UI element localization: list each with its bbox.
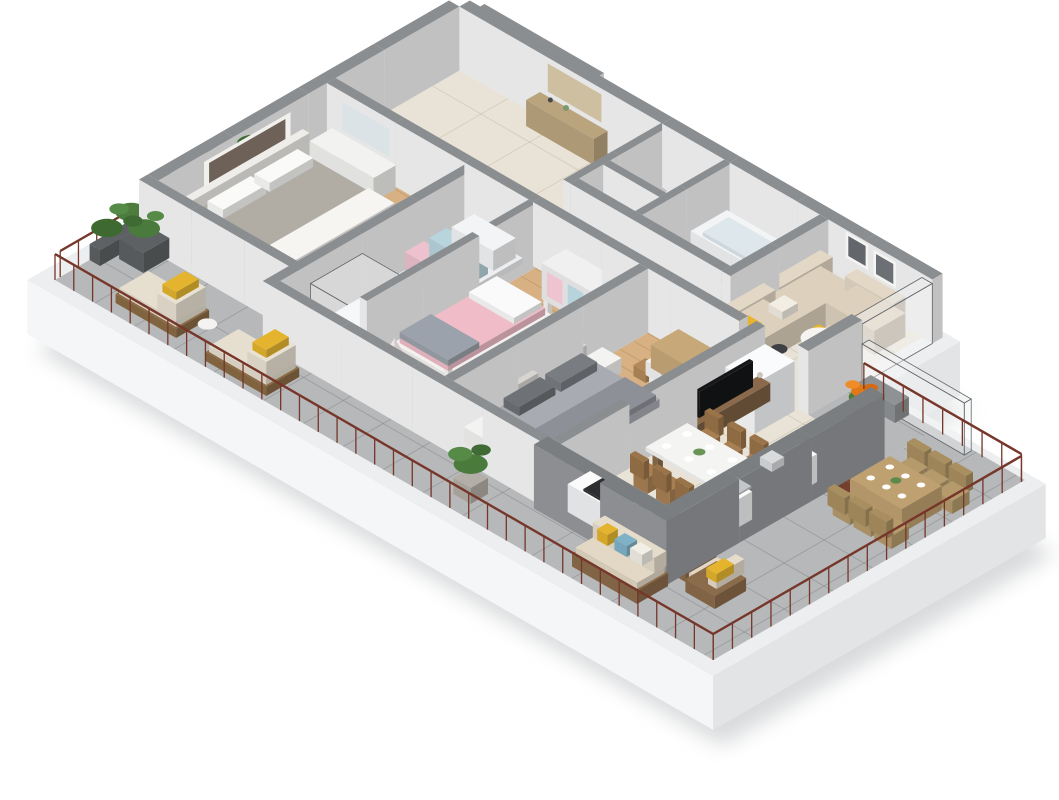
isometric-floor-plan <box>0 0 1059 800</box>
flower-pot-1-bloom-2 <box>845 380 860 389</box>
outdoor-plate-5 <box>898 494 907 499</box>
outdoor-plate-2 <box>886 465 895 470</box>
hedge-top-1 <box>109 203 129 214</box>
console-vase <box>757 372 763 378</box>
floor-plan-image <box>0 0 1059 800</box>
outdoor-plate-3 <box>882 485 891 490</box>
corner-plant-foliage-2 <box>123 215 143 226</box>
dining-plate-4 <box>705 444 715 450</box>
corner-plant-foliage-3 <box>147 211 164 221</box>
dining-plate-6 <box>727 457 737 463</box>
dining-plate-1 <box>662 443 672 449</box>
hall-deco-1 <box>548 98 553 103</box>
outdoor-plate-4 <box>901 474 910 479</box>
outdoor-plate-1 <box>867 476 876 481</box>
dining-plate-2 <box>682 431 692 437</box>
terrace-plant-foliage-2 <box>448 447 472 461</box>
lounger-side-table <box>198 318 218 329</box>
dining-centerpiece <box>693 448 705 455</box>
terrace-plant-foliage-3 <box>471 444 491 455</box>
dining-plate-5 <box>707 469 717 475</box>
outdoor-centerpiece <box>890 477 901 483</box>
hedge-bush-1 <box>91 219 123 237</box>
outdoor-plate-6 <box>917 483 926 488</box>
dining-plate-3 <box>684 456 694 462</box>
hall-deco-2 <box>563 105 569 111</box>
